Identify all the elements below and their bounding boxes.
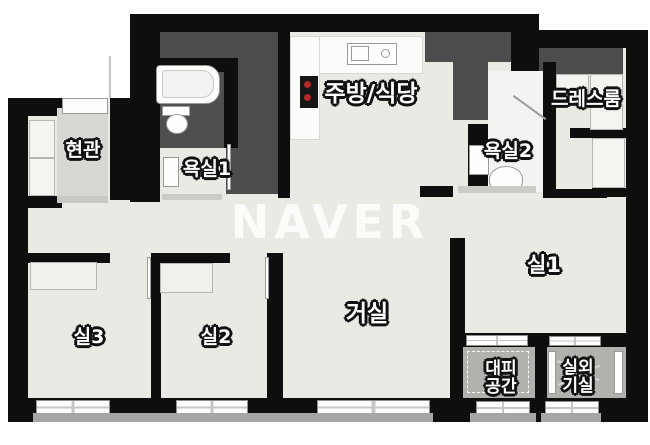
bathtub-inner bbox=[162, 70, 214, 98]
wall-evac-divider bbox=[535, 347, 547, 398]
wall-room2-top bbox=[152, 253, 230, 263]
exterior-nw bbox=[28, 32, 130, 98]
service-zone-ne-stem bbox=[453, 62, 488, 120]
kitchen-faucet bbox=[381, 49, 390, 58]
bath1-door-sill bbox=[162, 194, 222, 200]
label-outdoor: 실외 기실 bbox=[562, 360, 593, 396]
room3-door-leaf bbox=[147, 257, 151, 299]
window-outdoor-top bbox=[549, 336, 601, 346]
label-bath1: 욕실1 bbox=[183, 160, 231, 180]
wall-top bbox=[130, 14, 530, 32]
label-evac: 대피 공간 bbox=[485, 361, 516, 397]
wall-room1-hall bbox=[543, 189, 607, 198]
label-living: 거실 bbox=[346, 302, 388, 326]
room2-door-leaf bbox=[265, 257, 269, 299]
wall-ne-top bbox=[528, 30, 634, 48]
label-dressroom: 드레스룸 bbox=[551, 90, 621, 110]
washbasin-symbol bbox=[163, 157, 179, 187]
window-sill bbox=[470, 413, 536, 422]
entrance-step bbox=[57, 196, 108, 203]
wall-entrance-top bbox=[8, 98, 62, 116]
label-evac-line2: 공간 bbox=[485, 377, 516, 397]
service-zone-ne-band bbox=[425, 30, 511, 62]
wall-central-column bbox=[130, 14, 160, 202]
label-outdoor-line2: 기실 bbox=[562, 376, 593, 396]
wall-room2-living bbox=[267, 253, 283, 398]
label-room1: 실1 bbox=[527, 254, 561, 276]
entry-door-swing-line bbox=[109, 56, 111, 98]
window-sill bbox=[541, 413, 601, 422]
label-room3: 실3 bbox=[74, 328, 105, 348]
wall-bath1-right bbox=[224, 58, 238, 148]
louver-symbol bbox=[548, 351, 556, 394]
window-evac-top bbox=[466, 335, 528, 346]
wall-kitchen-left bbox=[278, 32, 290, 198]
louver-symbol bbox=[614, 351, 623, 394]
window-sill bbox=[33, 413, 433, 422]
room2-cabinet-symbol bbox=[160, 263, 213, 293]
entry-door-symbol bbox=[62, 98, 108, 114]
stove-burner bbox=[304, 81, 311, 88]
shoe-closet-symbol bbox=[29, 120, 55, 158]
room3-cabinet-symbol bbox=[30, 262, 97, 290]
stove-burner bbox=[304, 94, 311, 101]
kitchen-sink-basin bbox=[351, 46, 369, 61]
naver-watermark: NAVER bbox=[231, 195, 429, 249]
label-kitchen: 주방/식당 bbox=[324, 82, 417, 106]
label-entrance: 현관 bbox=[66, 141, 101, 161]
label-bath2: 욕실2 bbox=[484, 142, 532, 162]
floorplan-canvas: NAVER 현관 욕실1 주방/식당 드레스룸 욕실2 실1 거실 실2 실3 … bbox=[0, 0, 650, 445]
shoe-closet-symbol bbox=[29, 158, 55, 196]
toilet-symbol bbox=[166, 114, 188, 134]
bath2-door-sill bbox=[458, 186, 536, 193]
wall-right bbox=[626, 30, 648, 422]
label-room2: 실2 bbox=[201, 328, 232, 348]
room1-closet-symbol bbox=[592, 138, 625, 188]
wall-bath2-dress bbox=[543, 62, 556, 195]
